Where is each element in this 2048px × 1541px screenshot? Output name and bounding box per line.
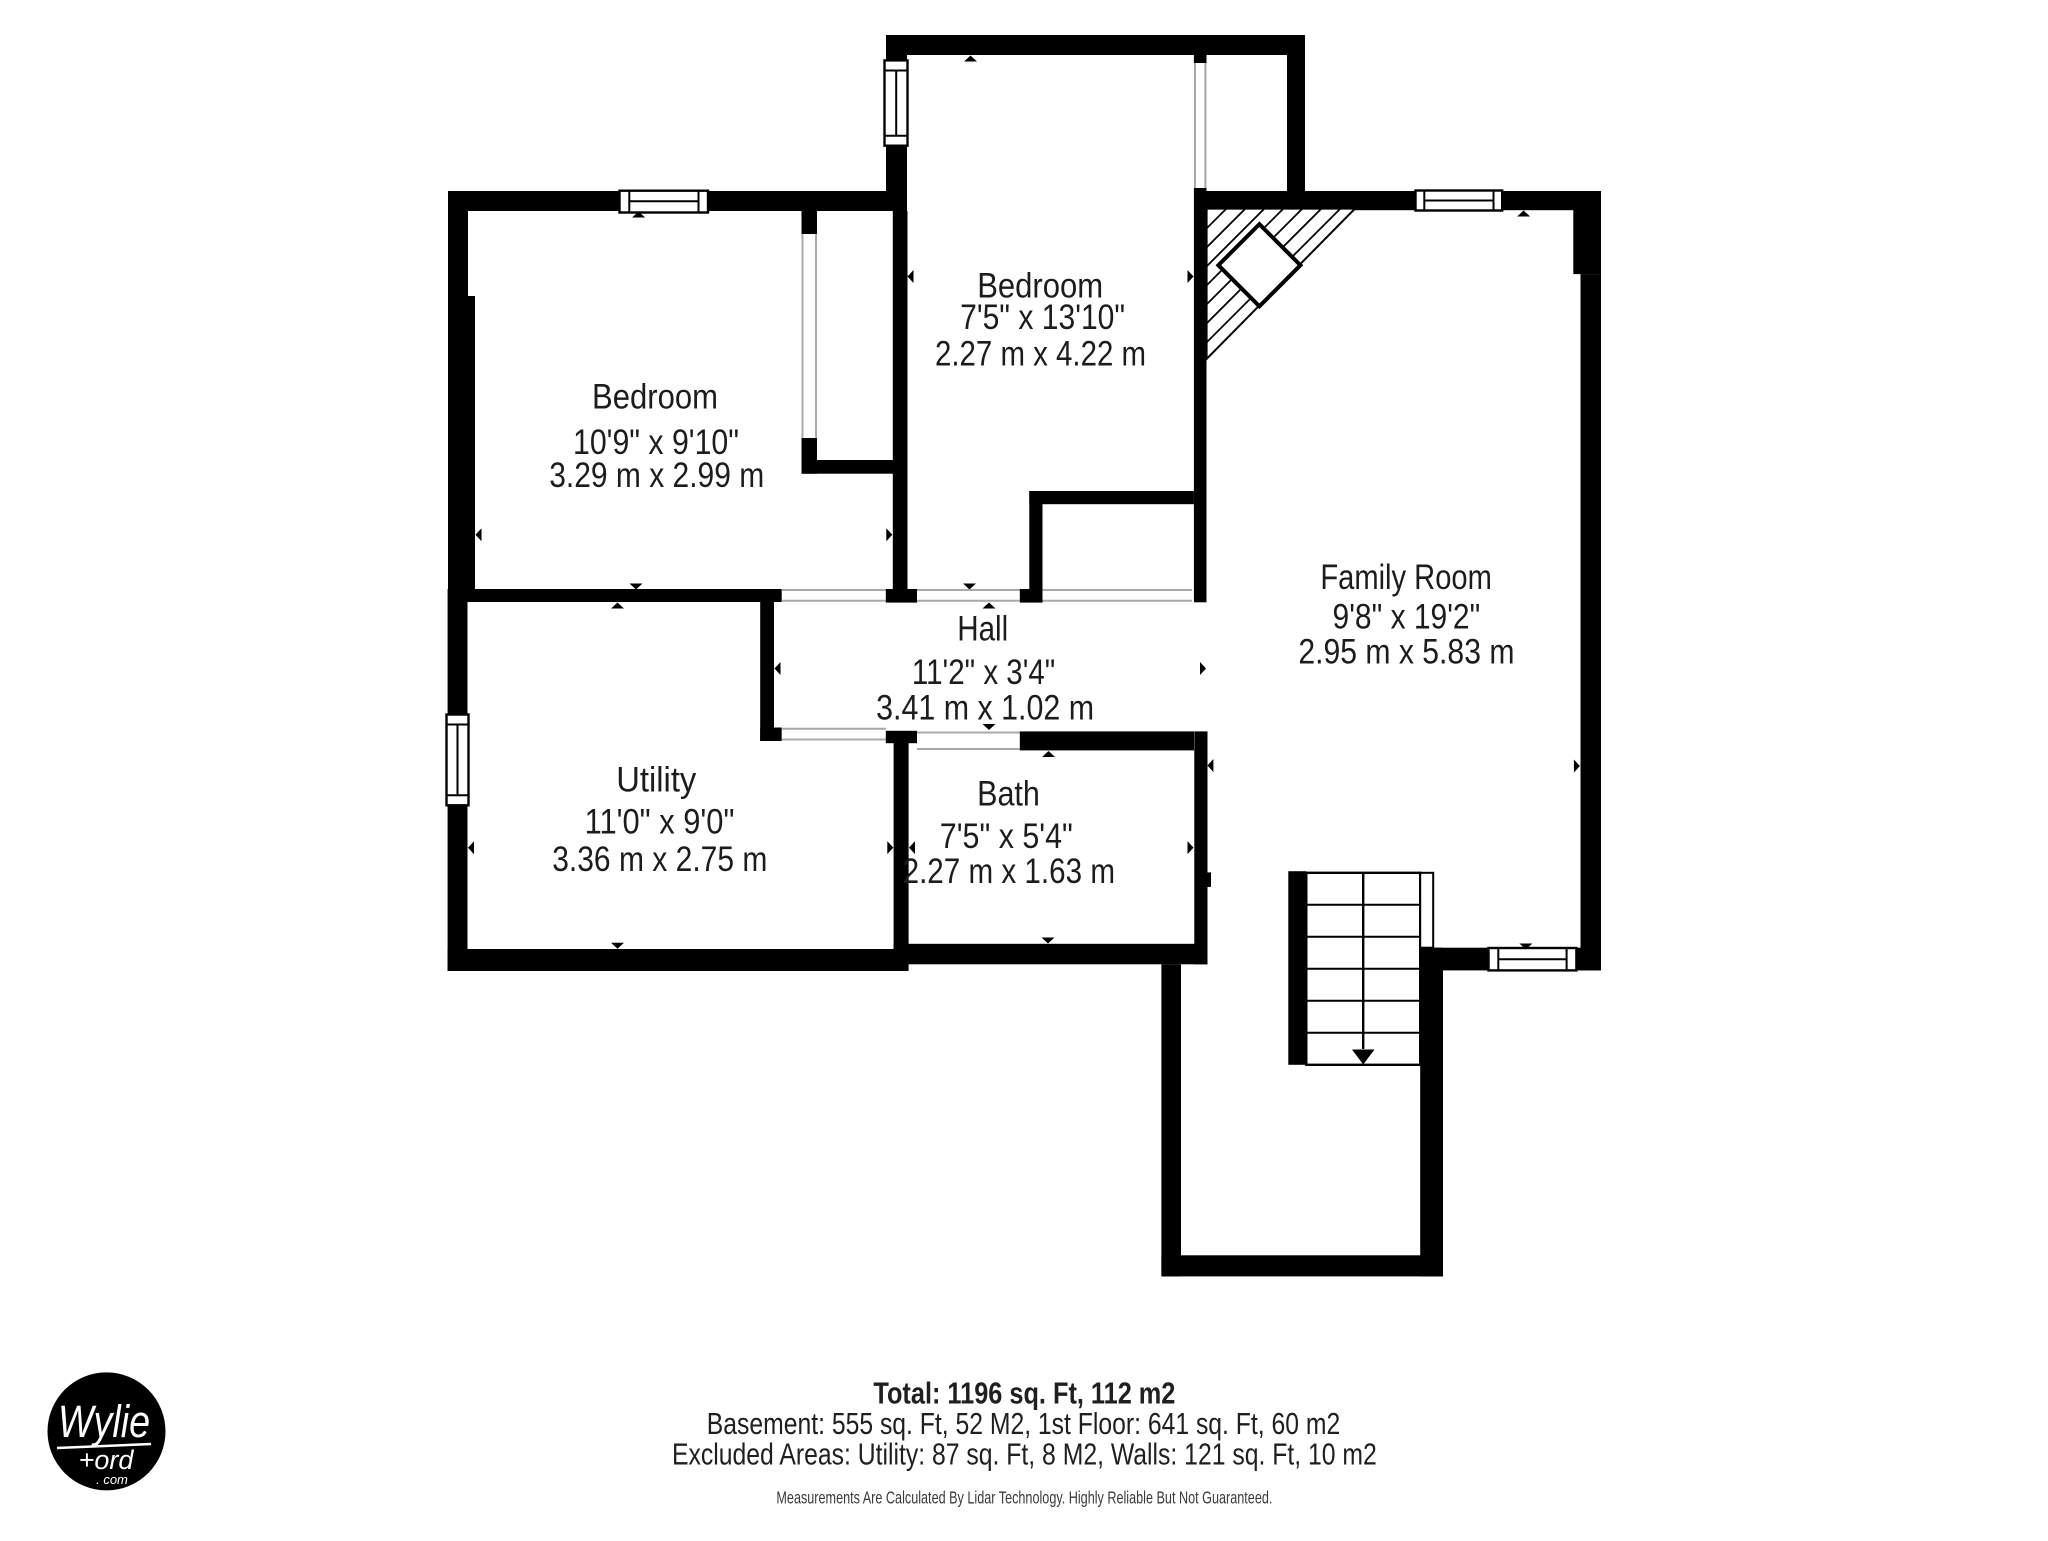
svg-text:9'8" x 19'2": 9'8" x 19'2" (1333, 598, 1481, 637)
svg-text:Bath: Bath (977, 774, 1040, 813)
svg-text:Total: 1196 sq. Ft, 112 m2: Total: 1196 sq. Ft, 112 m2 (873, 1376, 1175, 1410)
svg-text:2.27 m x 1.63 m: 2.27 m x 1.63 m (903, 852, 1115, 891)
svg-text:11'2" x 3'4": 11'2" x 3'4" (912, 653, 1055, 692)
svg-text:Family Room: Family Room (1320, 558, 1492, 597)
svg-text:. com: . com (96, 1472, 128, 1487)
svg-text:Wylie: Wylie (58, 1396, 150, 1447)
svg-text:+ord: +ord (79, 1445, 135, 1475)
svg-text:3.41 m x 1.02 m: 3.41 m x 1.02 m (876, 689, 1094, 728)
svg-text:Hall: Hall (957, 609, 1008, 648)
svg-text:Utility: Utility (616, 760, 696, 799)
svg-text:2.95 m x 5.83 m: 2.95 m x 5.83 m (1298, 632, 1514, 671)
svg-text:Basement: 555 sq. Ft, 52 M2, 1: Basement: 555 sq. Ft, 52 M2, 1st Floor: … (707, 1407, 1340, 1441)
svg-text:7'5" x 5'4": 7'5" x 5'4" (940, 817, 1073, 856)
svg-text:Bedroom: Bedroom (592, 378, 718, 417)
svg-text:2.27 m x 4.22 m: 2.27 m x 4.22 m (935, 335, 1146, 374)
svg-text:7'5" x 13'10": 7'5" x 13'10" (960, 298, 1125, 337)
svg-text:Excluded Areas: Utility: 87 sq: Excluded Areas: Utility: 87 sq. Ft, 8 M2… (672, 1438, 1377, 1472)
svg-text:3.36 m x 2.75 m: 3.36 m x 2.75 m (552, 840, 767, 879)
svg-text:Measurements Are Calculated By: Measurements Are Calculated By Lidar Tec… (776, 1487, 1272, 1507)
svg-text:3.29 m x 2.99 m: 3.29 m x 2.99 m (549, 456, 764, 495)
svg-text:11'0" x 9'0": 11'0" x 9'0" (585, 802, 735, 841)
